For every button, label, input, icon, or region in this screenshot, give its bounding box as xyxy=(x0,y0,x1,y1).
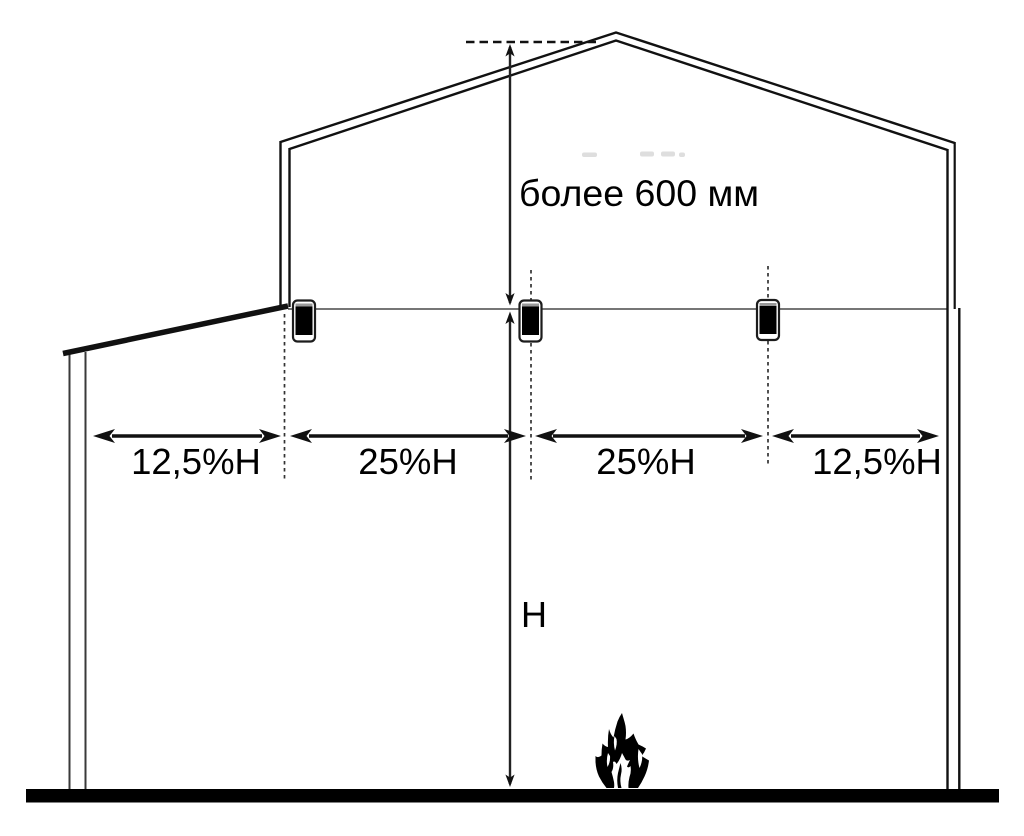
svg-text:более 600 мм: более 600 мм xyxy=(519,172,759,214)
svg-text:Н: Н xyxy=(521,594,547,635)
svg-text:25%H: 25%H xyxy=(596,441,695,482)
svg-text:12,5%H: 12,5%H xyxy=(812,441,942,482)
svg-text:12,5%H: 12,5%H xyxy=(131,441,261,482)
svg-text:25%H: 25%H xyxy=(358,441,457,482)
